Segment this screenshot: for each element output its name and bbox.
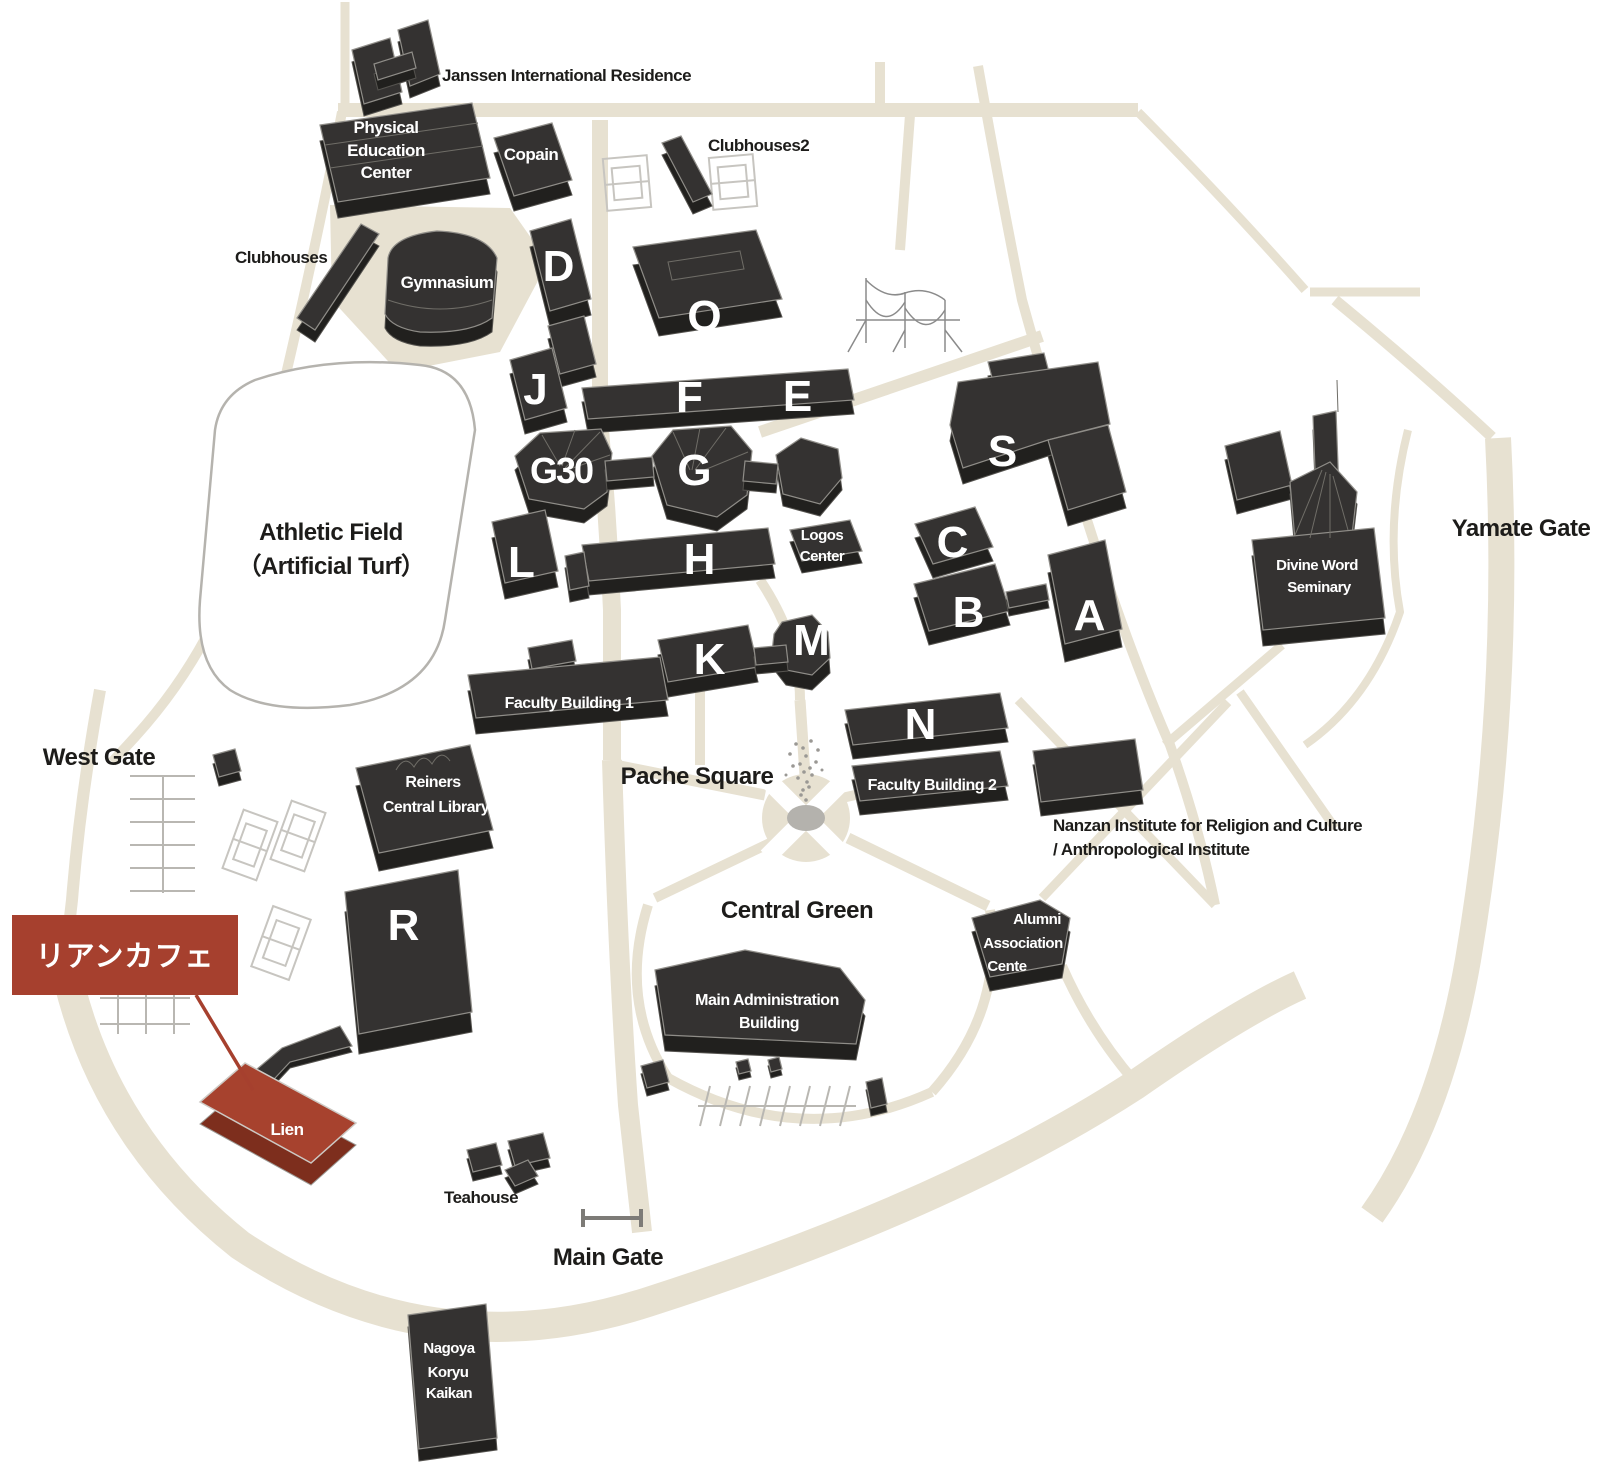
building-west-gate-hut (213, 749, 241, 786)
label-reiners-1: Reiners (405, 774, 461, 791)
building-nanzan-institute (1033, 739, 1143, 816)
cafe-callout-label: リアンカフェ (36, 941, 215, 973)
building-bridge-g30-g (605, 457, 654, 490)
building-g-east-wing (776, 438, 842, 516)
letter-g30: G30 (530, 450, 593, 491)
letter-r: R (388, 901, 419, 950)
letter-h: H (684, 535, 715, 584)
building-small-hut-2 (768, 1057, 782, 1078)
label-clubhouses: Clubhouses (235, 248, 327, 267)
label-copain: Copain (504, 145, 559, 164)
label-teahouse: Teahouse (444, 1188, 518, 1207)
label-alumni-1: Alumni (1013, 911, 1061, 928)
label-divine-2: Seminary (1287, 579, 1352, 596)
parking-west (130, 776, 195, 893)
building-small-hut-1 (736, 1059, 751, 1080)
building-s-wing (1048, 425, 1126, 526)
letter-g: G (677, 446, 710, 495)
building-admin-annex-west (641, 1060, 669, 1096)
label-reiners-2: Central Library (383, 799, 490, 816)
label-nagoya-3: Kaikan (426, 1385, 473, 1402)
label-pe-2: Education (347, 141, 425, 160)
cafe-callout: リアンカフェ (12, 915, 238, 995)
building-copain (494, 123, 572, 211)
campus-map: Janssen International Residence Clubhous… (0, 0, 1600, 1468)
label-pache-square: Pache Square (621, 763, 774, 790)
letter-l: L (508, 538, 534, 587)
label-faculty1: Faculty Building 1 (505, 695, 634, 712)
letter-f: F (676, 373, 702, 422)
label-alumni-3: Cente (987, 958, 1026, 975)
label-admin-1: Main Administration (695, 992, 839, 1009)
letter-e: E (783, 372, 811, 421)
building-divine-wing (1225, 431, 1292, 514)
label-nanzan-institute-1: Nanzan Institute for Religion and Cultur… (1053, 816, 1362, 835)
label-clubhouses2: Clubhouses2 (708, 136, 809, 155)
label-divine-1: Divine Word (1276, 557, 1358, 574)
building-bridge-b-a (1006, 584, 1049, 616)
letter-k: K (694, 635, 726, 684)
letter-c: C (937, 518, 968, 567)
letter-s: S (988, 427, 1016, 476)
building-f-e-row (582, 369, 854, 433)
label-admin-2: Building (739, 1015, 799, 1032)
label-faculty2: Faculty Building 2 (868, 777, 997, 794)
label-logos-1: Logos (801, 527, 844, 544)
label-central-green: Central Green (721, 897, 873, 924)
canopy-sketch (848, 278, 962, 352)
label-main-gate: Main Gate (553, 1244, 663, 1271)
letter-b: B (953, 588, 984, 637)
label-nagoya-2: Koryu (428, 1364, 469, 1381)
label-nanzan-institute-2: / Anthropological Institute (1053, 840, 1250, 859)
letter-n: N (905, 700, 936, 749)
building-nagoya-koryu-kaikan (408, 1304, 497, 1461)
label-lien: Lien (271, 1120, 304, 1139)
campus-map-svg: Janssen International Residence Clubhous… (0, 0, 1600, 1468)
building-r (345, 870, 472, 1054)
label-pe-3: Center (361, 163, 413, 182)
letter-q: Q (687, 292, 720, 341)
label-logos-2: Center (800, 548, 845, 565)
callout-leader-line (196, 995, 253, 1090)
letter-m: M (793, 616, 829, 665)
letter-j: J (523, 365, 546, 414)
label-alumni-2: Association (983, 935, 1063, 952)
label-athletic-field-1: Athletic Field (259, 519, 403, 546)
letter-a: A (1074, 591, 1105, 640)
building-bridge-g-east (743, 461, 778, 493)
label-athletic-field-2: （Artificial Turf） (237, 553, 424, 580)
letter-d: D (543, 242, 574, 291)
building-teahouse-a (467, 1143, 502, 1181)
label-pe-1: Physical (354, 118, 419, 137)
label-yamate-gate: Yamate Gate (1452, 515, 1591, 542)
label-gymnasium: Gymnasium (401, 273, 494, 292)
building-clubhouses2 (662, 136, 712, 214)
label-janssen: Janssen International Residence (442, 66, 691, 85)
building-bridge-k-m (754, 645, 788, 674)
building-h-west-wing (565, 552, 589, 602)
label-nagoya-1: Nagoya (423, 1340, 475, 1357)
label-west-gate: West Gate (43, 744, 156, 771)
